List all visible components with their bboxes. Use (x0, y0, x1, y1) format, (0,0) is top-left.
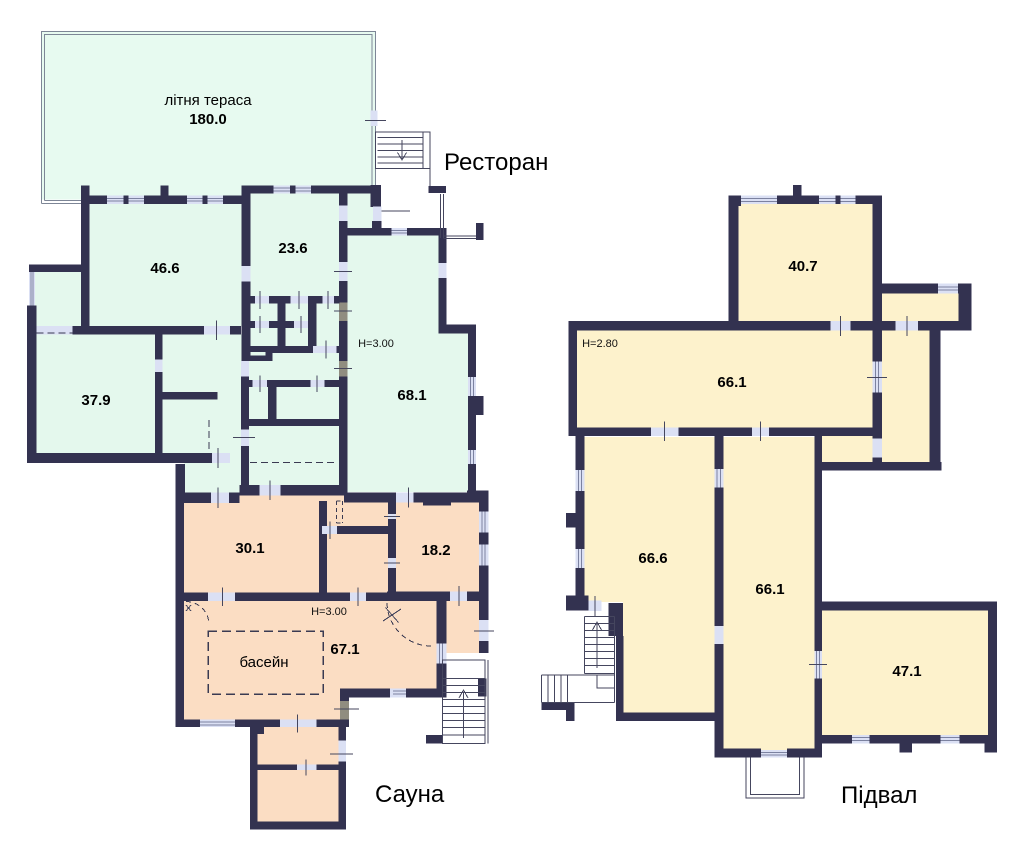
svg-text:літня тераса: літня тераса (164, 92, 252, 109)
svg-text:H=3.00: H=3.00 (311, 606, 347, 618)
svg-text:23.6: 23.6 (278, 240, 307, 257)
svg-text:40.7: 40.7 (788, 258, 817, 275)
svg-text:30.1: 30.1 (235, 540, 264, 557)
svg-text:басейн: басейн (239, 654, 288, 671)
svg-text:H=3.00: H=3.00 (358, 338, 394, 350)
svg-text:66.1: 66.1 (717, 374, 746, 391)
svg-text:Сауна: Сауна (375, 781, 445, 808)
svg-text:Підвал: Підвал (841, 782, 917, 809)
svg-text:47.1: 47.1 (892, 663, 921, 680)
svg-text:180.0: 180.0 (189, 111, 227, 128)
svg-text:18.2: 18.2 (421, 542, 450, 559)
svg-text:H=2.80: H=2.80 (582, 338, 618, 350)
svg-text:37.9: 37.9 (81, 392, 110, 409)
svg-text:67.1: 67.1 (330, 641, 359, 658)
svg-text:68.1: 68.1 (397, 387, 426, 404)
svg-text:66.6: 66.6 (638, 550, 667, 567)
svg-text:46.6: 46.6 (150, 260, 179, 277)
svg-text:66.1: 66.1 (755, 581, 784, 598)
svg-text:Ресторан: Ресторан (444, 149, 548, 176)
